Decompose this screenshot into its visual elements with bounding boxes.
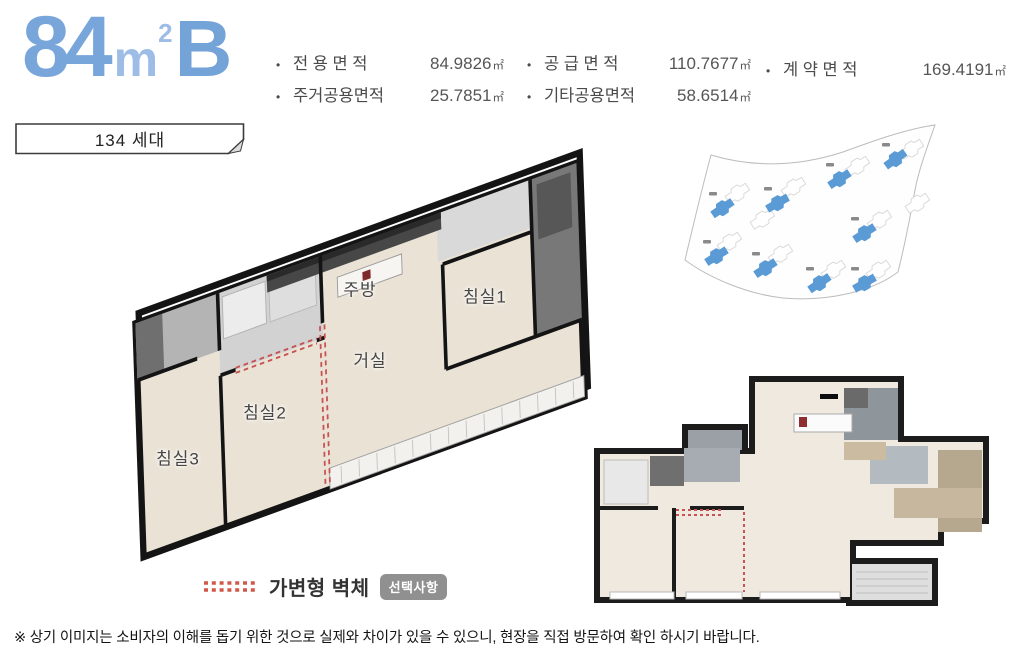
spec-column-2: • 공 급 면 적 110.7677㎡ • 기타공용면적 58.6514㎡ [527,50,751,114]
bullet-icon: • [527,90,544,104]
spec-other-common-area: • 기타공용면적 58.6514㎡ [527,82,751,114]
bullet-icon: • [766,64,783,78]
spec-column-1: • 전 용 면 적 84.9826㎡ • 주거공용면적 25.7851㎡ [276,50,504,114]
bullet-icon: • [527,58,544,72]
room-label-kitchen: 주방 [343,276,376,301]
room-label-bedroom1: 침실1 [463,283,507,308]
spec-value: 58.6514㎡ [656,86,751,106]
unit-type-square-sup: 2 [158,18,172,49]
room-label-living: 거실 [353,347,386,372]
bullet-icon: • [276,90,293,104]
room-label-bedroom2: 침실2 [243,399,287,424]
site-plan-graphic [668,112,1008,322]
spec-contract-area: • 계 약 면 적 169.4191㎡ [766,56,1006,88]
spec-label: 기타공용면적 [544,82,656,106]
spec-value: 25.7851㎡ [405,86,504,106]
floorplan-2d-graphic [594,366,1009,612]
red-dashed-line-icon [203,580,259,593]
floorplan-3d: 주방 침실1 거실 침실2 침실3 [75,148,645,568]
spec-value: 110.7677㎡ [656,54,751,74]
legend-label: 가변형 벽체 [269,572,370,601]
spec-residential-common-area: • 주거공용면적 25.7851㎡ [276,82,504,114]
unit-type-suffix: B [175,9,233,89]
optional-badge: 선택사항 [380,574,448,600]
unit-type-meter: m [114,34,158,84]
site-plan [668,112,1008,322]
spec-column-3: • 계 약 면 적 169.4191㎡ [766,56,1006,88]
spec-value: 169.4191㎡ [895,60,1006,80]
unit-type-title: 84 m 2 B [22,4,232,90]
spec-label: 공 급 면 적 [544,50,656,74]
disclaimer-note: ※ 상기 이미지는 소비자의 이해를 돕기 위한 것으로 실제와 차이가 있을 … [14,626,760,647]
unit-type-number: 84 [22,4,108,90]
spec-label: 계 약 면 적 [783,56,895,80]
floorplan-2d [594,366,1009,612]
spec-value: 84.9826㎡ [405,54,504,74]
spec-label: 전 용 면 적 [293,50,405,74]
brochure-page: 84 m 2 B 134 세대 • 전 용 면 적 84.9826㎡ • 주거공… [0,0,1009,654]
spec-exclusive-area: • 전 용 면 적 84.9826㎡ [276,50,504,82]
bullet-icon: • [276,58,293,72]
spec-label: 주거공용면적 [293,82,405,106]
room-label-bedroom3: 침실3 [156,445,200,470]
legend-movable-wall: 가변형 벽체 선택사항 [203,572,447,601]
spec-supply-area: • 공 급 면 적 110.7677㎡ [527,50,751,82]
